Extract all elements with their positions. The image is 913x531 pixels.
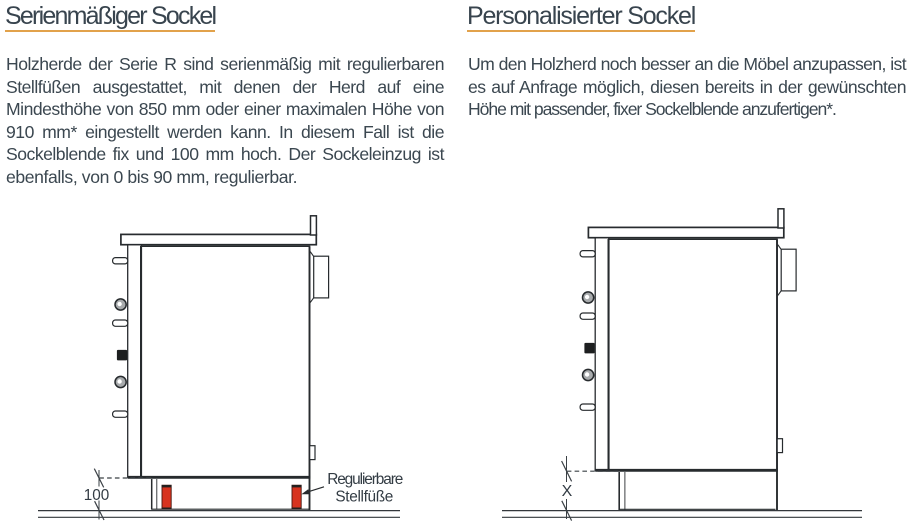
- svg-text:100: 100: [84, 487, 110, 504]
- svg-text:Regulierbare: Regulierbare: [327, 471, 403, 488]
- svg-text:Stellfüße: Stellfüße: [335, 488, 393, 505]
- svg-text:X: X: [562, 483, 573, 500]
